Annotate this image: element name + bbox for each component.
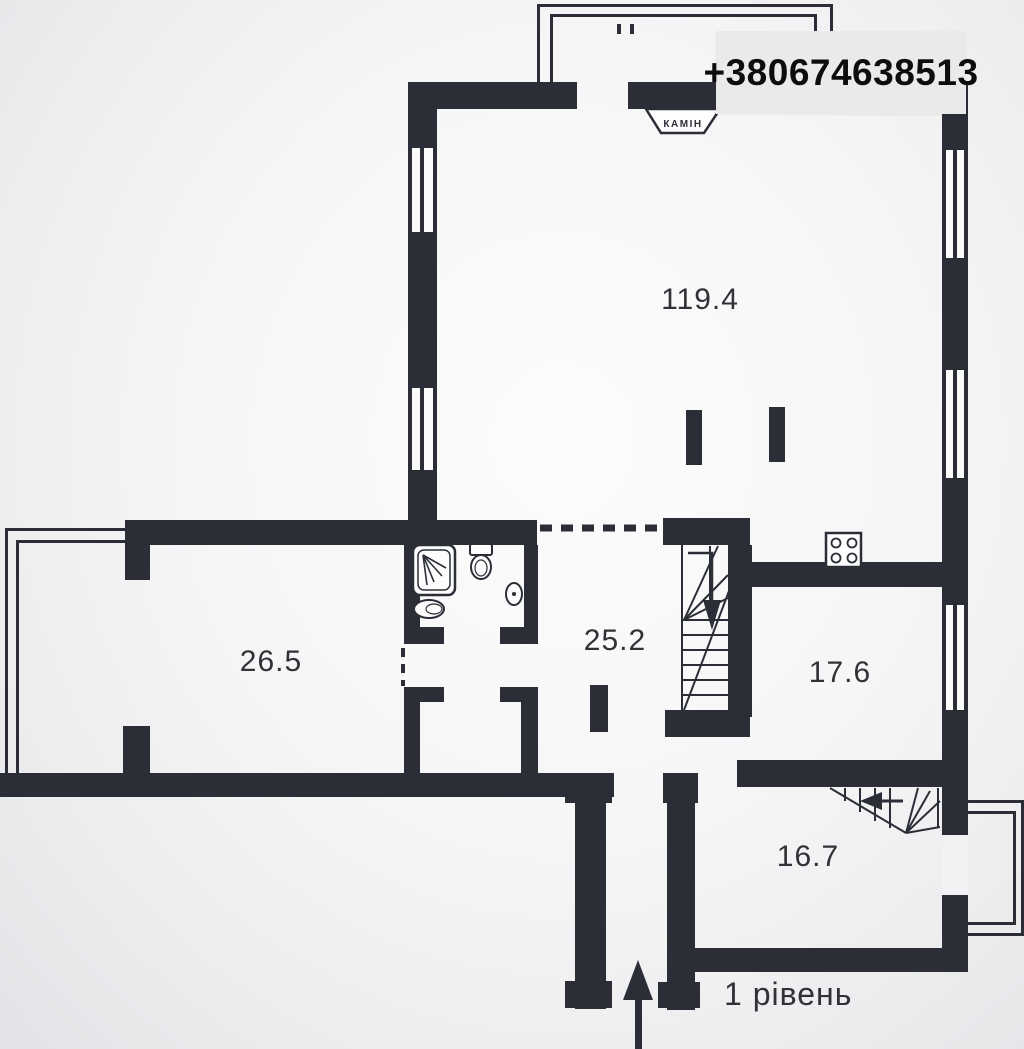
window-right-2	[942, 370, 968, 478]
room-area-label-kitchen: 17.6	[785, 656, 895, 690]
wall-stub-hall	[590, 685, 608, 732]
wall-bathroom-bottom-right	[500, 627, 538, 644]
wall-vestibule-top-right	[500, 687, 538, 702]
wall-vestibule-right	[521, 700, 538, 775]
wall-stair-right	[728, 545, 752, 717]
wall-stub-living-1	[686, 410, 702, 465]
balcony-right-outline	[968, 800, 1024, 936]
stairs-down-arrow	[703, 600, 721, 630]
window-right-1	[942, 150, 968, 258]
toilet-icon	[470, 544, 492, 579]
wall-bottom-right	[695, 948, 968, 972]
wall-bathroom-bottom-left	[404, 627, 444, 644]
wall-corridor-left	[575, 776, 606, 1009]
stove-icon	[826, 533, 861, 567]
wall-corridor-right-cap-bottom	[658, 982, 700, 1008]
room-area-label-bedroom: 26.5	[216, 645, 326, 679]
wall-bottom-left	[0, 773, 614, 797]
room-area-label-hall: 25.2	[560, 624, 670, 658]
room-area-label-living: 119.4	[640, 283, 760, 317]
wall-kitchen-bottom	[737, 760, 968, 787]
staircase-up-icon	[830, 788, 940, 833]
wall-stair-top	[663, 518, 750, 545]
floor-plan-canvas: КАМІН	[0, 0, 1024, 1049]
balcony-left-outline	[5, 528, 125, 776]
wall-stair-bottom	[665, 710, 750, 737]
shower-icon	[413, 545, 455, 595]
floor-plan-drawing: КАМІН	[0, 0, 1024, 1049]
chimney-line-1	[617, 24, 621, 34]
level-label: 1 рівень	[724, 976, 852, 1013]
window-right-3	[942, 605, 968, 710]
sink-icon	[506, 583, 522, 605]
window-left-2	[408, 388, 437, 470]
window-left-1	[408, 148, 437, 232]
wall-stub-top-left-room	[125, 545, 150, 580]
bidet-icon	[414, 600, 444, 618]
wall-stub-bottom-left-room	[123, 726, 150, 773]
wall-corridor-left-cap-bottom	[565, 981, 612, 1008]
wall-corridor-right	[667, 773, 695, 1010]
chimney-line-2	[630, 24, 634, 34]
door-gap-balcony-right	[942, 835, 968, 895]
fireplace-label: КАМІН	[663, 119, 702, 130]
wall-stub-living-2	[769, 407, 785, 462]
room-area-label-entry: 16.7	[753, 840, 863, 874]
wall-vestibule-left	[404, 687, 420, 775]
fireplace-icon: КАМІН	[646, 109, 720, 133]
wall-mid-horizontal	[125, 520, 537, 545]
entrance-arrow-icon	[623, 960, 653, 1049]
phone-number-badge: +380674638513	[716, 31, 966, 114]
